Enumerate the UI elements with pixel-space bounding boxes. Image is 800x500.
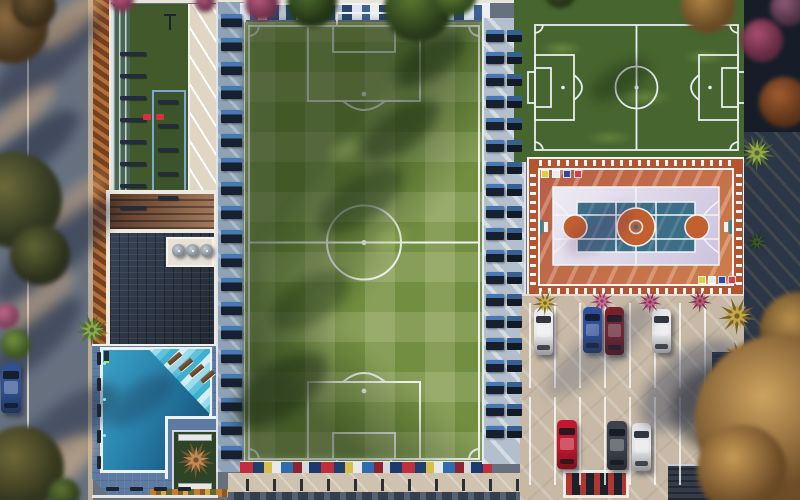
gym-lamp-post [169,14,171,30]
ground-southeast [744,370,800,500]
clubhouse-terrace [166,237,214,267]
entrance-canopy [563,470,629,498]
court-markings [527,157,745,297]
tree-shadow-overlay-sw [245,22,483,462]
pool-ladder [104,351,109,363]
service-building-roof [668,464,754,500]
grandstand-main-field [240,3,490,20]
south-dark-edge [228,492,528,500]
basketball-hoop-west [540,220,543,234]
bench-walkway-west [216,2,246,472]
dark-tree-mass-northeast [744,0,800,132]
basketball-hoop-east [729,220,732,234]
colorful-seat-strip [240,461,492,473]
gym-lamp-arm [164,14,176,16]
main-soccer-field [245,22,483,462]
shaded-path-east [744,132,800,372]
mini-soccer-field [533,23,740,152]
clubhouse-sunlit-roof [110,194,214,229]
deck-edge-line [92,495,218,498]
aerial-sports-complex-render [0,0,800,500]
planter-bench-north [178,434,212,441]
street-lane-line [27,0,29,500]
